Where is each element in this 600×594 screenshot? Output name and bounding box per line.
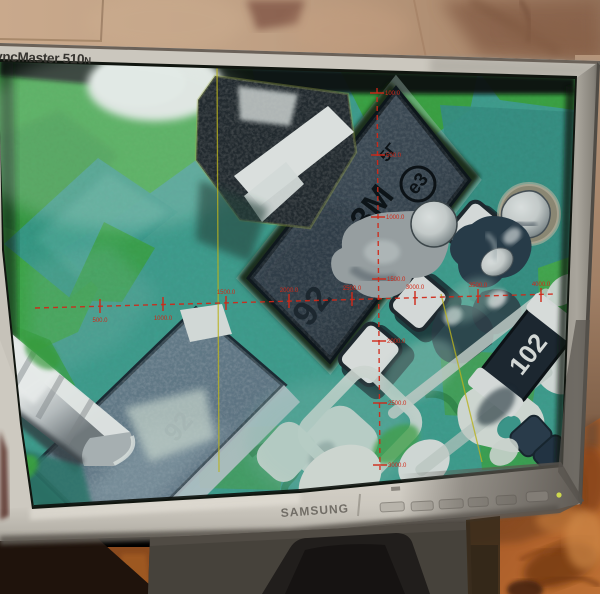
svg-text:3000.0: 3000.0 bbox=[388, 463, 407, 469]
svg-text:500.0: 500.0 bbox=[92, 318, 108, 324]
svg-text:4000.0: 4000.0 bbox=[532, 282, 551, 288]
svg-text:2500.0: 2500.0 bbox=[343, 286, 362, 292]
svg-text:yncMaster 510N: yncMaster 510N bbox=[0, 49, 92, 67]
svg-text:1500.0: 1500.0 bbox=[387, 277, 406, 283]
svg-text:3000.0: 3000.0 bbox=[406, 285, 425, 291]
svg-text:2000.0: 2000.0 bbox=[387, 339, 406, 345]
svg-text:500.0: 500.0 bbox=[386, 153, 402, 159]
svg-text:1000.0: 1000.0 bbox=[154, 316, 173, 322]
svg-text:2000.0: 2000.0 bbox=[280, 288, 299, 294]
svg-text:1000.0: 1000.0 bbox=[386, 215, 405, 221]
svg-text:1500.0: 1500.0 bbox=[217, 290, 236, 296]
svg-text:3500.0: 3500.0 bbox=[469, 283, 488, 289]
svg-text:2500.0: 2500.0 bbox=[388, 401, 407, 407]
svg-text:100.0: 100.0 bbox=[385, 91, 401, 97]
